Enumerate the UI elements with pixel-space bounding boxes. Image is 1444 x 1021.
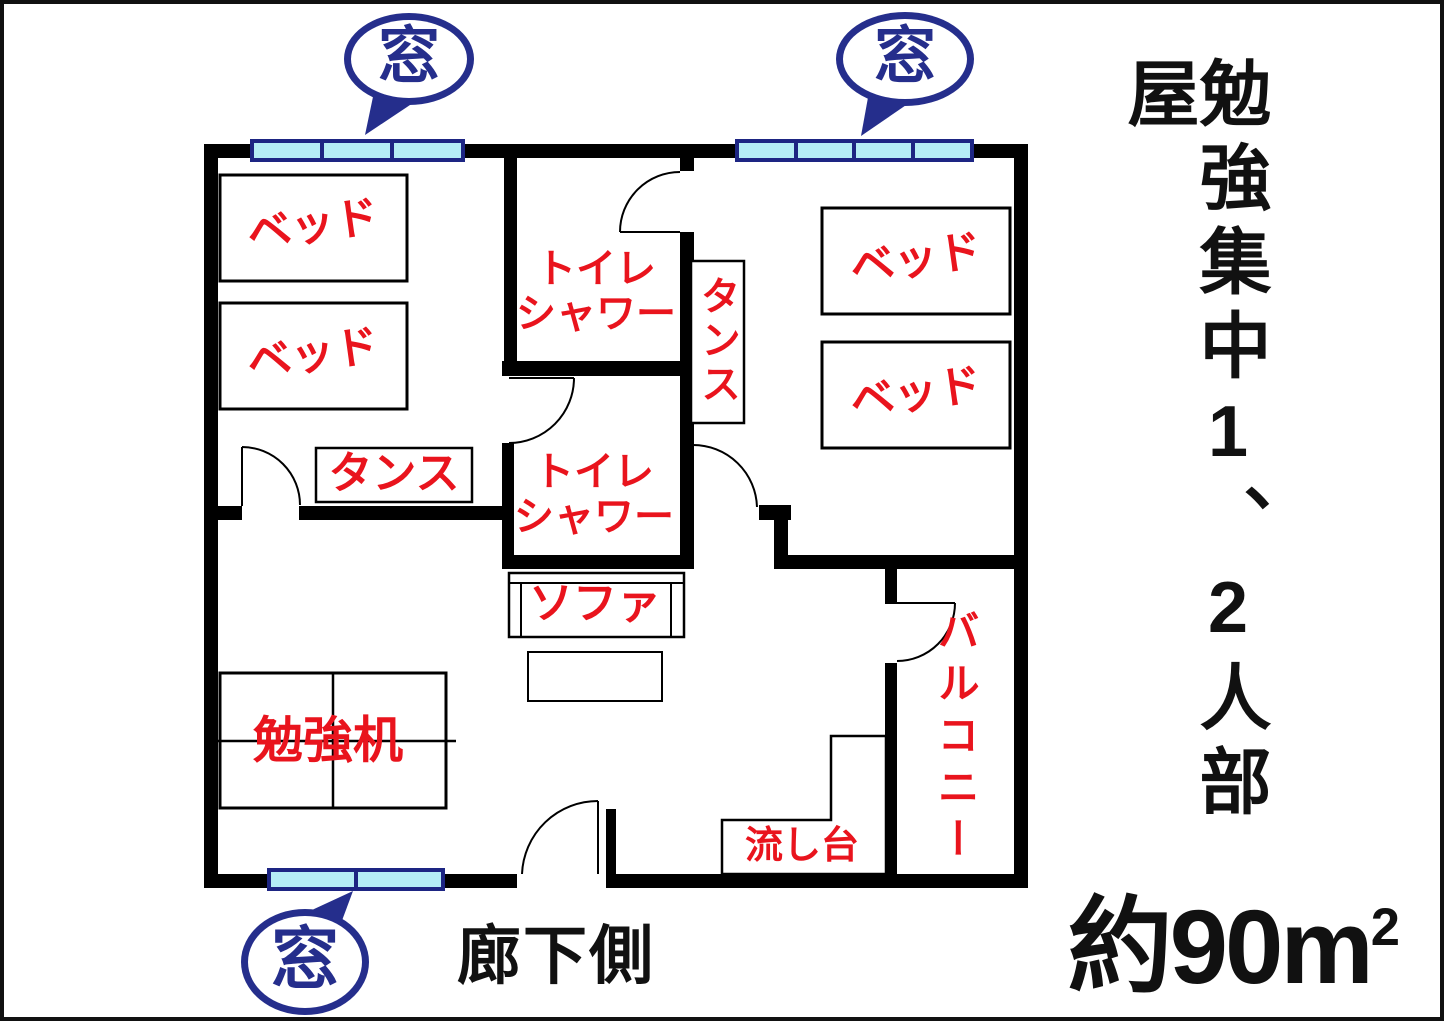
wall-bath-upper-bottom [502, 361, 694, 376]
wall-bath-lower-bottom [502, 555, 694, 569]
door-arc-bath-lower [509, 378, 574, 443]
door-arc-entrance [522, 801, 598, 874]
wall-center-right [774, 555, 1028, 569]
sink-label: 流し台 [745, 826, 859, 868]
floor-plan-canvas: 窓 窓 窓 ベッド ベッド ベッド ベッド トイレ シャワー トイレ シャワー … [0, 0, 1444, 1021]
wall-entrance-pillar [606, 809, 616, 876]
study-desk-label: 勉強机 [253, 714, 403, 769]
area-value: 約90m [1068, 889, 1371, 1006]
window-sill-top-left [252, 141, 463, 160]
door-arc-bedroom-left [242, 447, 300, 505]
wall-bottom-right [606, 874, 1028, 888]
table-outline [528, 652, 662, 701]
wall-bedroom-left-bottom-stub [204, 506, 242, 520]
area-superscript: 2 [1371, 898, 1400, 957]
plan-title-vertical: 勉強集中1、2人部屋 [1124, 56, 1264, 856]
wall-bath-right-stub [680, 156, 694, 171]
wall-balcony-stub [885, 569, 897, 604]
window-bubble-label: 窓 [271, 923, 339, 998]
wall-bedroom-left-bottom [299, 506, 510, 520]
door-arc-bedroom-right [693, 445, 757, 507]
window-bubble-label: 窓 [378, 23, 440, 91]
door-arc-bath-upper [620, 172, 680, 232]
bathroom-label: トイレ シャワー [514, 450, 674, 540]
window-bubble-label: 窓 [874, 23, 936, 91]
bathroom-label: トイレ シャワー [516, 247, 676, 337]
balcony-label: バルコニー [932, 609, 978, 869]
area-label: 約90m2 [1044, 862, 1400, 1014]
dresser-label: タンス [695, 275, 739, 407]
wall-right [1014, 144, 1028, 888]
dresser-label: タンス [328, 450, 459, 498]
corridor-side-label: 廊下側 [457, 921, 655, 991]
sofa-label: ソファ [529, 580, 661, 628]
